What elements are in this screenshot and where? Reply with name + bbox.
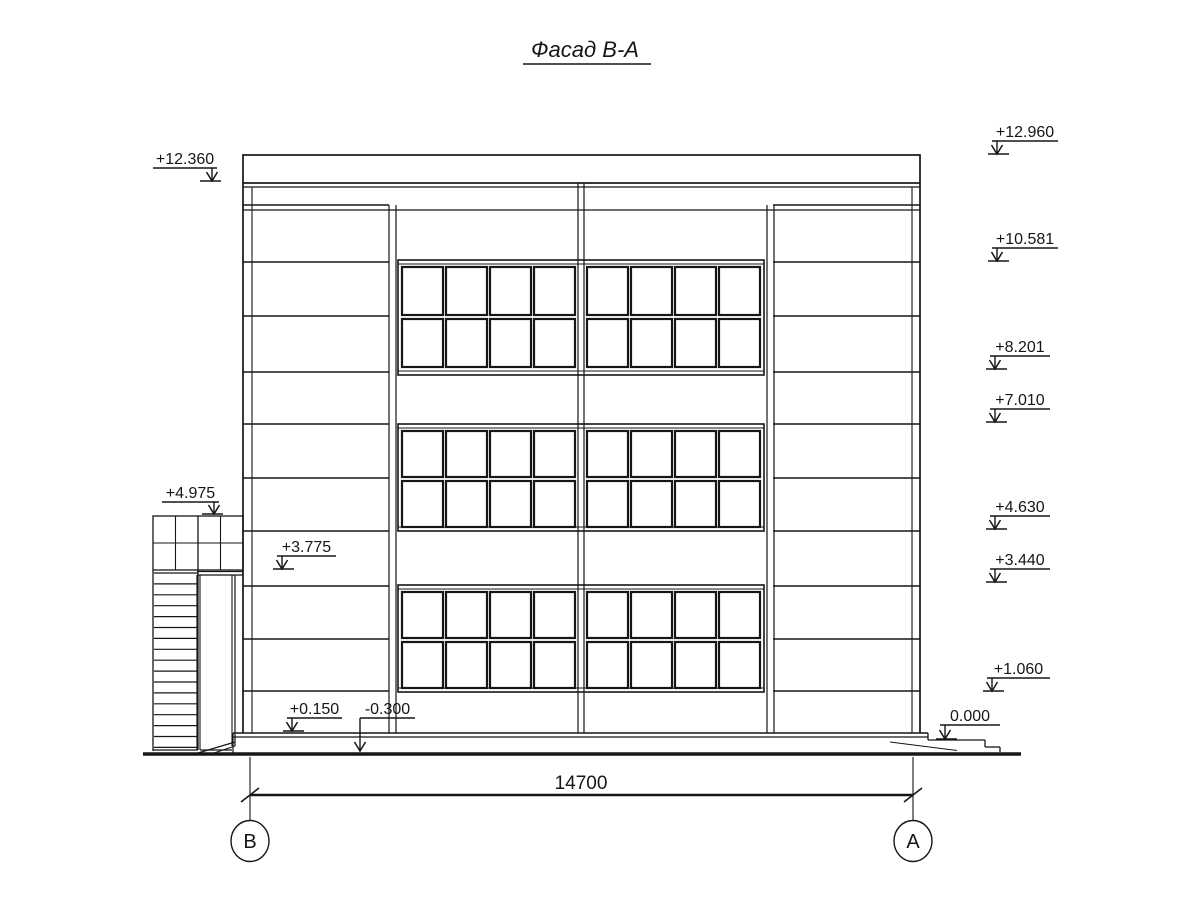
window-cell: [631, 642, 672, 688]
window-cell: [675, 642, 716, 688]
dimension-line: 14700: [241, 757, 922, 821]
window-cell: [587, 431, 628, 477]
elevation-mark: +7.010: [986, 392, 1050, 422]
window-cell: [675, 481, 716, 527]
window-cell: [402, 592, 443, 638]
window-cell: [587, 267, 628, 315]
elevation-value: -0.300: [365, 701, 410, 718]
window-cell: [446, 319, 487, 367]
window-cell: [534, 481, 575, 527]
window-cell: [490, 592, 531, 638]
window-cell: [402, 267, 443, 315]
parapet: [243, 155, 920, 183]
window-cell: [631, 592, 672, 638]
window-cell: [587, 642, 628, 688]
window-cell: [675, 431, 716, 477]
window-cell: [402, 642, 443, 688]
window-cell: [402, 431, 443, 477]
elevation-value: +7.010: [995, 392, 1044, 409]
window-cell: [719, 642, 760, 688]
entrance-door: [197, 572, 243, 754]
window-cell: [631, 319, 672, 367]
window-cell: [446, 592, 487, 638]
window-cell: [534, 319, 575, 367]
elevation-mark: +4.630: [986, 499, 1050, 529]
axis-markers: В А: [231, 821, 932, 862]
axis-label-a: А: [906, 831, 920, 853]
elevation-value: +1.060: [994, 661, 1043, 678]
base-plinth: [233, 733, 1000, 753]
window-cell: [587, 592, 628, 638]
window-cell: [719, 592, 760, 638]
elevation-mark: 0.000: [936, 708, 1000, 739]
elevation-mark: -0.300: [355, 701, 416, 751]
axis-label-b: В: [243, 831, 256, 853]
facade-drawing: Фасад В-А: [0, 0, 1200, 900]
window-cell: [534, 642, 575, 688]
elevation-value: +4.975: [166, 485, 215, 502]
window-cell: [490, 319, 531, 367]
window-cell: [446, 642, 487, 688]
facade-drawing-page: Фасад В-А: [0, 0, 1200, 900]
elevation-value: +3.775: [282, 539, 331, 556]
elevation-mark: +3.775: [273, 539, 336, 569]
window-cell: [631, 267, 672, 315]
window-cell: [587, 319, 628, 367]
window-cell: [402, 481, 443, 527]
window-cell: [631, 481, 672, 527]
elevation-value: 0.000: [950, 708, 990, 725]
window-cell: [719, 267, 760, 315]
window-cell: [631, 431, 672, 477]
window-cell: [446, 267, 487, 315]
window-cell: [446, 431, 487, 477]
elevation-mark: +0.150: [283, 701, 342, 731]
window-band-frame: [398, 260, 764, 375]
elevation-value: +4.630: [995, 499, 1044, 516]
window-cell: [490, 431, 531, 477]
window-cell: [490, 267, 531, 315]
window-cell: [719, 431, 760, 477]
elevation-value: +10.581: [996, 231, 1054, 248]
dimension-value: 14700: [555, 773, 608, 794]
elevation-mark: +3.440: [986, 552, 1050, 582]
elevation-mark: +10.581: [988, 231, 1058, 261]
elevation-marks: +12.960+10.581+8.201+7.010+4.630+3.440+1…: [153, 124, 1058, 751]
window-cell: [675, 592, 716, 638]
window-cell: [534, 267, 575, 315]
window-cell: [587, 481, 628, 527]
elevation-value: +3.440: [995, 552, 1044, 569]
window-cell: [402, 319, 443, 367]
elevation-mark: +12.360: [153, 151, 221, 181]
window-cell: [675, 319, 716, 367]
window-cell: [490, 642, 531, 688]
elevation-value: +12.960: [996, 124, 1054, 141]
elevation-value: +12.360: [156, 151, 214, 168]
window-cell: [534, 431, 575, 477]
elevation-mark: +1.060: [983, 661, 1050, 691]
stair-treads: [154, 573, 198, 747]
window-cell: [719, 481, 760, 527]
window-cell: [490, 481, 531, 527]
window-bands: [398, 260, 764, 692]
elevation-mark: +8.201: [986, 339, 1050, 369]
elevation-mark: +12.960: [988, 124, 1058, 154]
entrance-stair: [153, 516, 243, 751]
drawing-title: Фасад В-А: [523, 37, 651, 64]
title-text: Фасад В-А: [531, 37, 639, 62]
wall-frame: [243, 183, 920, 733]
window-cell: [446, 481, 487, 527]
window-cell: [534, 592, 575, 638]
elevation-mark: +4.975: [162, 485, 223, 514]
window-cell: [675, 267, 716, 315]
elevation-value: +8.201: [995, 339, 1044, 356]
elevation-value: +0.150: [290, 701, 339, 718]
side-panel-lines: [243, 205, 920, 691]
window-cell: [719, 319, 760, 367]
